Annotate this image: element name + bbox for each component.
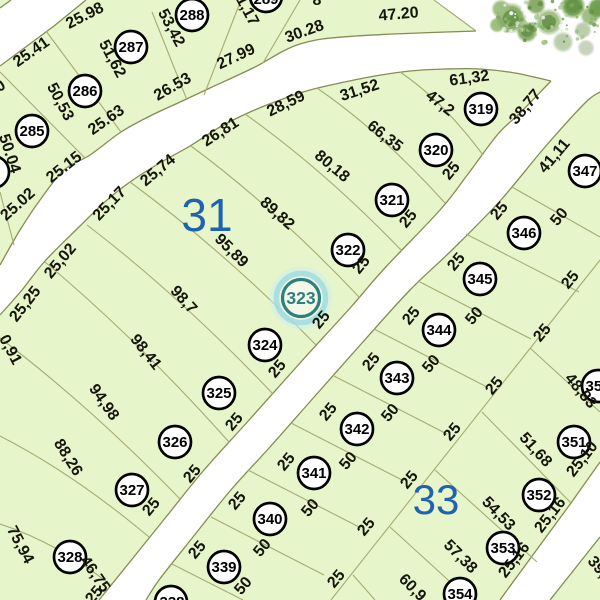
svg-text:8: 8	[313, 0, 322, 9]
svg-text:344: 344	[426, 322, 452, 339]
svg-text:288: 288	[179, 7, 204, 24]
svg-text:324: 324	[252, 337, 278, 354]
svg-text:352: 352	[526, 487, 551, 504]
svg-text:286: 286	[72, 83, 97, 100]
svg-text:347: 347	[572, 163, 597, 180]
svg-text:31: 31	[181, 189, 232, 241]
svg-text:325: 325	[206, 385, 231, 402]
svg-text:320: 320	[423, 142, 448, 159]
svg-text:287: 287	[118, 39, 143, 56]
svg-text:346: 346	[511, 225, 536, 242]
svg-text:321: 321	[379, 192, 404, 209]
svg-text:339: 339	[211, 559, 236, 576]
svg-text:342: 342	[344, 421, 369, 438]
svg-text:338: 338	[159, 594, 184, 600]
svg-text:33: 33	[413, 476, 460, 523]
svg-text:285: 285	[19, 123, 44, 140]
svg-text:327: 327	[119, 482, 144, 499]
svg-text:323: 323	[286, 288, 315, 308]
svg-text:47.20: 47.20	[378, 4, 419, 24]
svg-text:319: 319	[468, 101, 493, 118]
svg-text:345: 345	[467, 271, 492, 288]
svg-text:341: 341	[301, 465, 326, 482]
svg-text:340: 340	[257, 511, 282, 528]
svg-text:343: 343	[384, 370, 409, 387]
svg-text:354: 354	[447, 586, 473, 600]
svg-text:326: 326	[162, 434, 187, 451]
svg-text:289: 289	[253, 0, 278, 8]
